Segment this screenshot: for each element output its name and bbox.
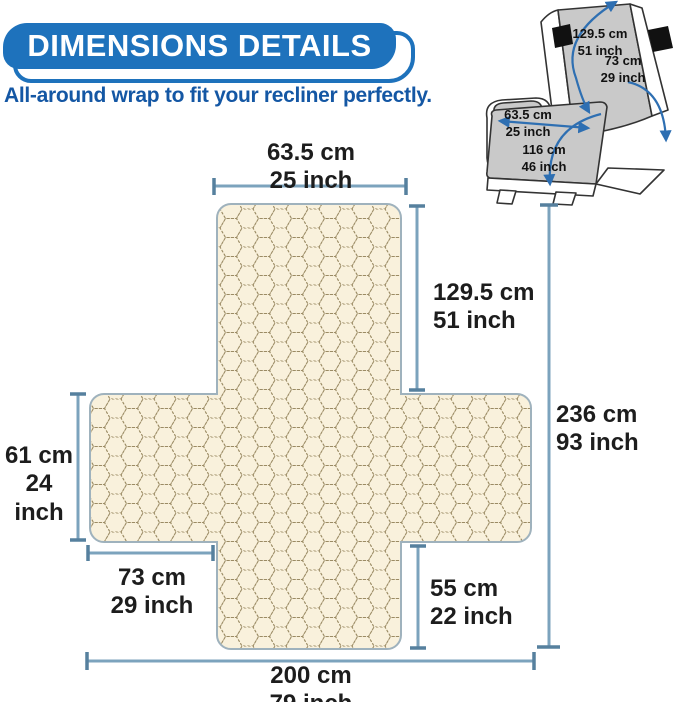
dim-value-inch: 29 inch <box>581 70 665 87</box>
title-badge: DIMENSIONS DETAILS <box>3 23 396 69</box>
recliner-leg-right <box>553 192 576 205</box>
dim-value-inch: 22 inch <box>430 603 560 631</box>
page-title: DIMENSIONS DETAILS <box>27 28 371 64</box>
dim-value-inch: 24 inch <box>0 470 78 527</box>
dim-value-inch: 25 inch <box>486 124 570 141</box>
recliner-label-seat-length: 116 cm 46 inch <box>502 142 586 176</box>
dim-label-side-wing-height: 61 cm 24 inch <box>0 442 78 527</box>
dim-label-side-wing-width: 73 cm 29 inch <box>77 564 227 621</box>
recliner-base <box>596 168 664 194</box>
dim-value-inch: 79 inch <box>211 690 411 702</box>
dim-value-cm: 63.5 cm <box>211 139 411 167</box>
dim-value-cm: 73 cm <box>581 53 665 70</box>
product-infographic: DIMENSIONS DETAILS All-around wrap to fi… <box>0 0 679 702</box>
dim-label-back-height: 129.5 cm 51 inch <box>433 279 603 336</box>
recliner-label-seat-width: 63.5 cm 25 inch <box>486 107 570 141</box>
recliner-leg-left <box>497 190 516 204</box>
dim-value-cm: 116 cm <box>502 142 586 159</box>
dim-label-total-length: 236 cm 93 inch <box>556 401 679 458</box>
dim-value-inch: 51 inch <box>433 307 603 335</box>
dim-value-cm: 63.5 cm <box>486 107 570 124</box>
dim-label-front-drop: 55 cm 22 inch <box>430 575 560 632</box>
dim-value-cm: 129.5 cm <box>558 26 642 43</box>
dim-value-cm: 73 cm <box>77 564 227 592</box>
dim-value-cm: 129.5 cm <box>433 279 603 307</box>
dim-value-inch: 46 inch <box>502 159 586 176</box>
dim-value-cm: 61 cm <box>0 442 78 470</box>
recliner-label-arm-wrap: 73 cm 29 inch <box>581 53 665 87</box>
dim-label-total-width: 200 cm 79 inch <box>211 662 411 702</box>
dim-value-cm: 55 cm <box>430 575 560 603</box>
dim-value-cm: 236 cm <box>556 401 679 429</box>
subtitle: All-around wrap to fit your recliner per… <box>4 84 564 108</box>
dim-value-inch: 29 inch <box>77 592 227 620</box>
dim-label-seat-width-top: 63.5 cm 25 inch <box>211 139 411 196</box>
dim-value-cm: 200 cm <box>211 662 411 690</box>
dim-value-inch: 93 inch <box>556 429 679 457</box>
dim-value-inch: 25 inch <box>211 167 411 195</box>
